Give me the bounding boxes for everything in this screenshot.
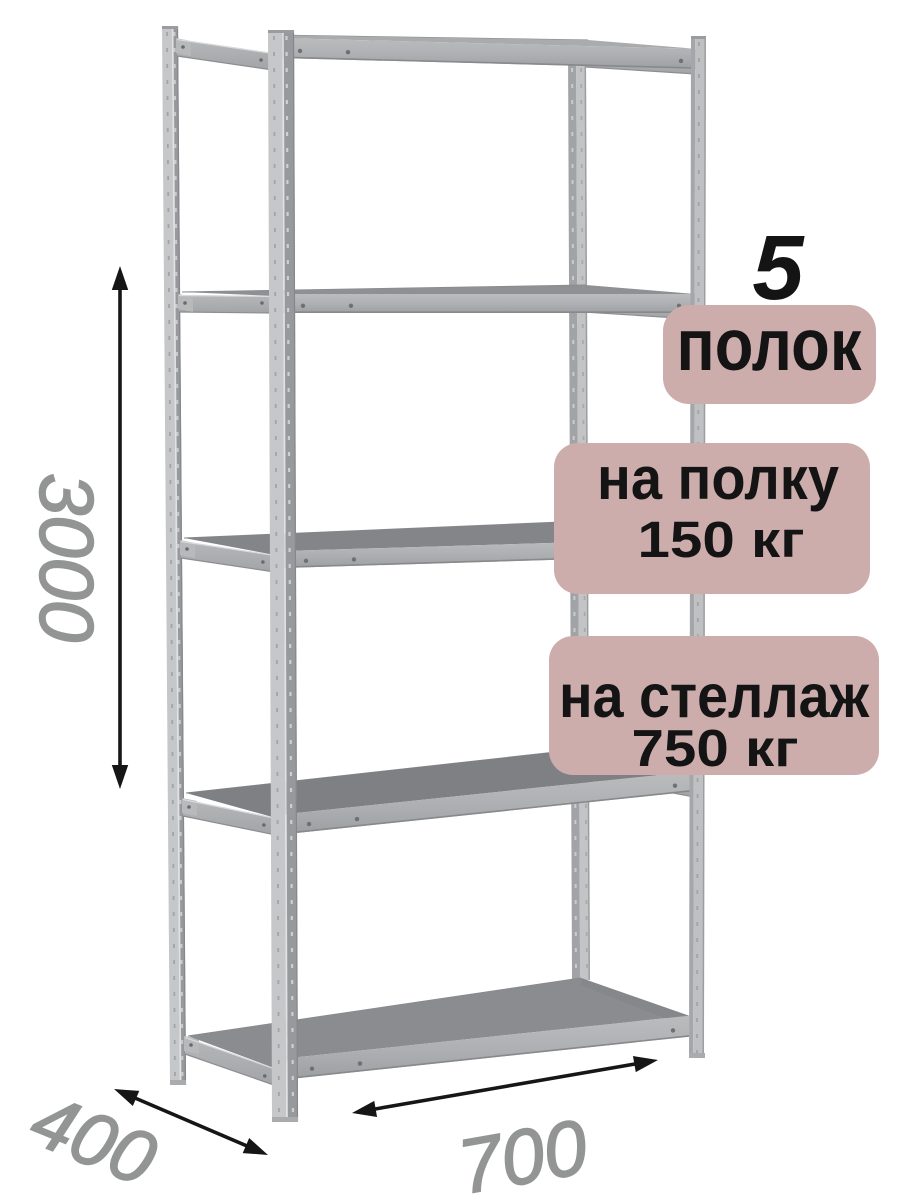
- svg-text:150 кг: 150 кг: [638, 511, 805, 568]
- svg-text:на полку: на полку: [597, 445, 840, 512]
- svg-text:750 кг: 750 кг: [632, 720, 799, 778]
- svg-text:700: 700: [452, 1104, 594, 1200]
- svg-text:полок: полок: [677, 305, 862, 386]
- svg-text:400: 400: [20, 1077, 168, 1200]
- svg-text:5: 5: [752, 217, 805, 319]
- svg-text:3000: 3000: [23, 473, 108, 642]
